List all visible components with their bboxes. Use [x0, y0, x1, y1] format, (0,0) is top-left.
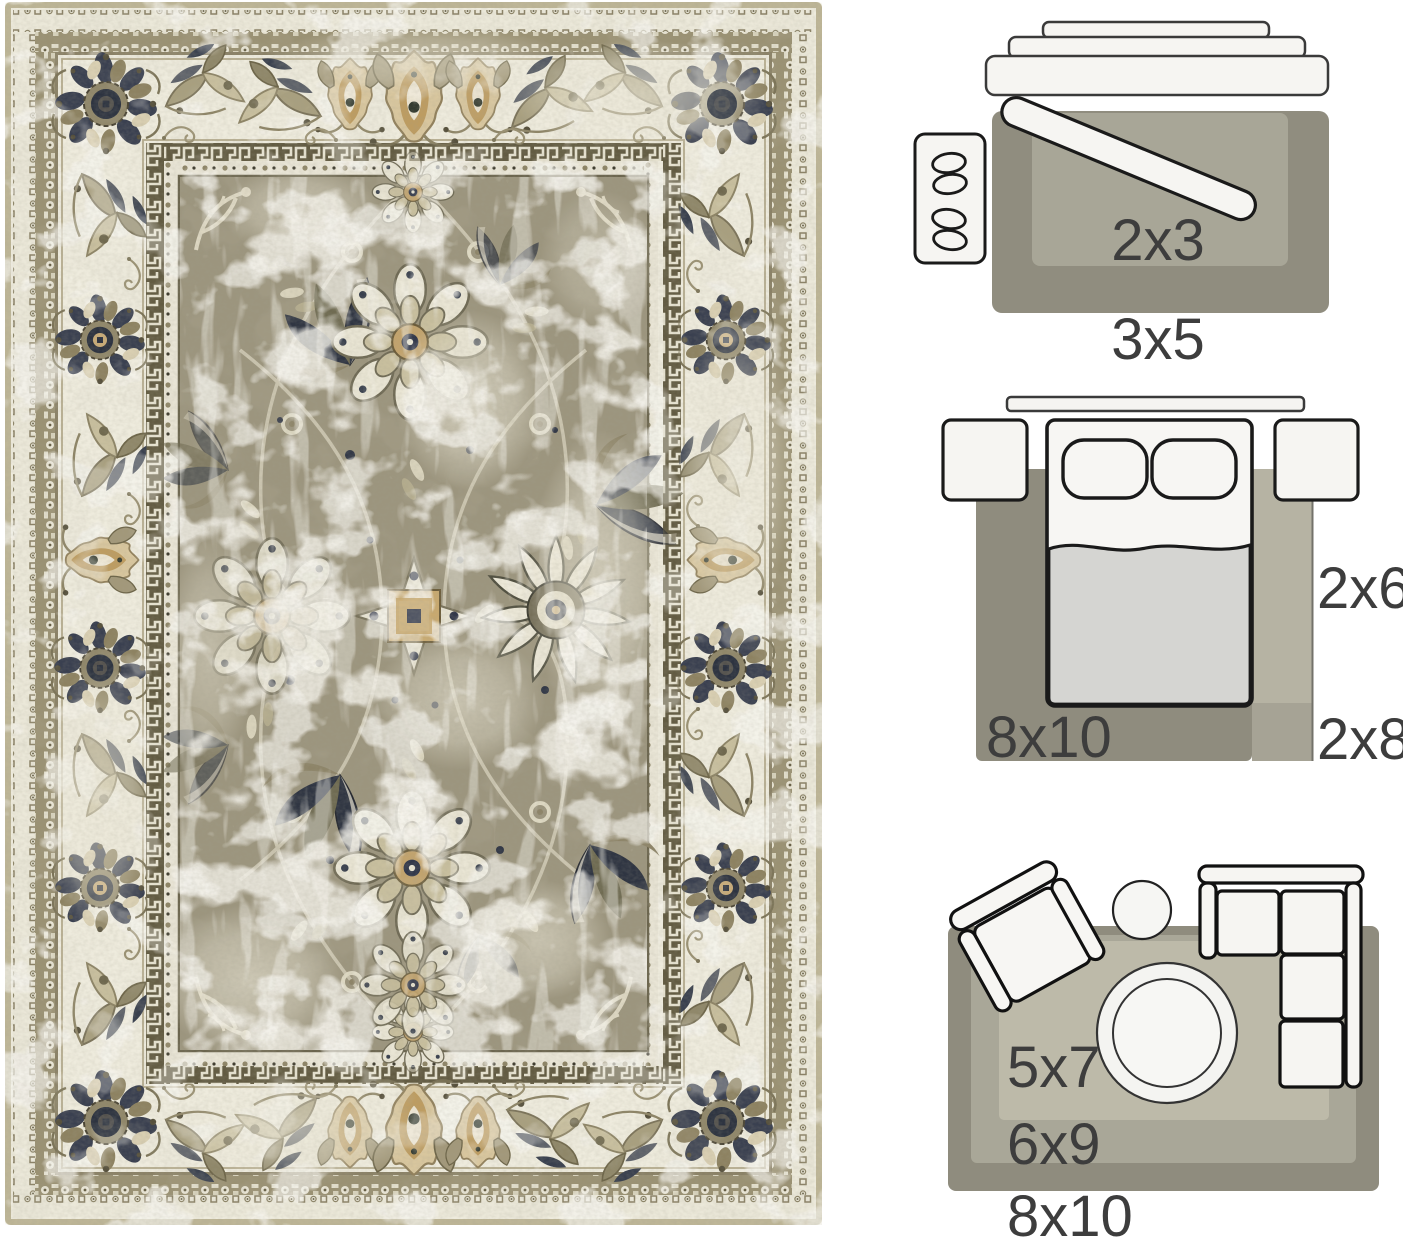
svg-text:2x3: 2x3 [1111, 208, 1205, 273]
svg-text:8x10: 8x10 [986, 705, 1112, 770]
svg-text:6x9: 6x9 [1007, 1112, 1101, 1177]
svg-text:8x10: 8x10 [1007, 1184, 1133, 1237]
svg-text:5x7: 5x7 [1007, 1035, 1101, 1100]
svg-text:3x5: 3x5 [1111, 307, 1205, 372]
svg-text:2x8: 2x8 [1317, 707, 1403, 772]
svg-text:2x6: 2x6 [1317, 556, 1403, 621]
